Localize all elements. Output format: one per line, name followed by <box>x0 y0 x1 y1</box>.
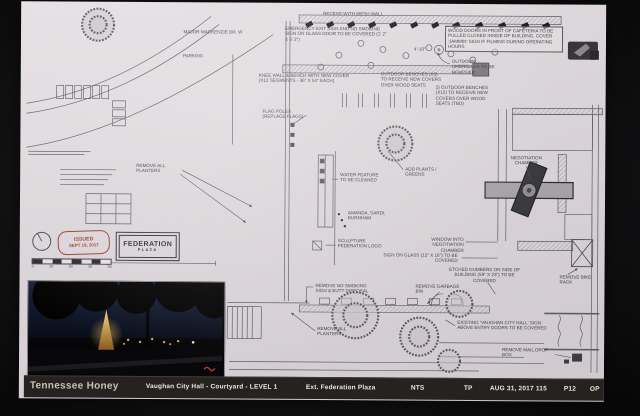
dimension-label: 4'-10" <box>414 47 438 53</box>
scale-tick-0: 0 <box>32 265 34 269</box>
studio-name: Tennessee Honey <box>30 381 119 392</box>
mail-drop-box-symbol <box>572 354 582 362</box>
keyplan-thumbnail <box>566 39 604 65</box>
annotation-names: AMANDA, SARDI, BURNHAM <box>348 210 388 221</box>
annotation-parking: PARKING <box>183 53 219 59</box>
annotation-street-name: MAJOR MACKENZIE DR. W <box>181 29 245 35</box>
drawing-sheet: RECESS WITH MESH WALL EMERGENCY EXIT SIG… <box>19 1 606 402</box>
federation-plaza-inner: FEDERATION PLAZA <box>119 235 177 258</box>
annotation-remove-planters-left: REMOVE ALL PLANTERS <box>136 163 182 174</box>
annotation-benches-x12: 2) OUTDOOR BENCHES (X12) TO RECEIVE NEW … <box>436 85 498 107</box>
scale-bar-ticks: 0 10 20 30 40 <box>32 265 112 269</box>
annotation-remove-mail: REMOVE MAIL DROP BOX <box>502 347 554 358</box>
annotation-etched-numbers: ETCHED NUMBERS ON SIDE OF BUILDING (59" … <box>448 267 522 284</box>
night-photo-art <box>28 281 223 375</box>
north-arrow <box>33 232 51 250</box>
issued-stamp-line2: SEPT 19, 2017 <box>59 243 109 249</box>
small-fixture-symbol <box>564 360 569 364</box>
federation-plaza-box: FEDERATION PLAZA <box>116 232 180 261</box>
date-value: AUG 31, 2017 <box>490 386 534 393</box>
page-number: P12 <box>564 387 576 394</box>
code-value: OP <box>590 387 600 394</box>
annotation-sculpture-logo: SCULPTURE FEDERATION LOGO <box>338 238 382 249</box>
graphic-scale-bar: 0 10 20 30 40 <box>32 258 112 269</box>
title-bar: Tennessee Honey Vaughan City Hall - Cour… <box>24 375 604 401</box>
scale-tick-40: 40 <box>108 265 112 269</box>
annotation-benches-x5: OUTDOOR BENCHES (X5) TO RECEIVE NEW COVE… <box>381 71 443 88</box>
annotation-umbrellas: OUTDOOR UMBRELLAS TO BE REMOVED <box>452 59 498 75</box>
scale-tick-20: 20 <box>69 265 73 269</box>
annotation-wood-doors: WOOD DOORS IN FRONT OF CAFETERIA TO BE P… <box>445 26 563 52</box>
federation-plaza-line2: PLAZA <box>138 249 158 253</box>
night-photo-inset <box>27 280 226 378</box>
scale-tick-30: 30 <box>88 265 92 269</box>
annotation-flag-poles: FLAG POLES (REPLACE FLAGS) <box>262 109 308 120</box>
annotation-remove-bike-rack: REMOVE BIKE RACK <box>559 275 601 286</box>
name-marker-dots <box>338 213 346 227</box>
project-title: Vaughan City Hall - Courtyard - LEVEL 1 <box>146 384 278 391</box>
keyplan-glyph <box>566 39 604 65</box>
annotation-remove-garbage: REMOVE GARBAGE BIN <box>415 284 461 295</box>
projected-slide-photo: RECESS WITH MESH WALL EMERGENCY EXIT SIG… <box>0 0 640 416</box>
scale-bar-cells <box>32 258 112 264</box>
flag-pole-symbols <box>290 123 294 147</box>
federation-plaza-line1: FEDERATION <box>123 240 172 247</box>
annotation-window-chamber: WINDOW INTO NEGOTIATION CHAMBER <box>416 237 464 254</box>
annotation-remove-planters-bottom: REMOVE ALL PLANTERS <box>317 326 365 337</box>
annotation-negotiation-chamber: NEGOTIATION CHAMBER <box>500 155 552 166</box>
annotation-existing-sign: EXISTING 'VAUGHAN CITY HALL' SIGN ABOVE … <box>457 320 551 331</box>
job-number: 115 <box>536 386 547 393</box>
annotation-no-smoking: REMOVE NO SMOKING SIGN & BUTT DISPOSAL <box>315 283 373 294</box>
annotation-emergency-exit: EMERGENCY EXIT SIGN AND NO SMOKING SIGN … <box>285 26 387 43</box>
scale-value: NTS <box>411 386 425 393</box>
parking-stalls <box>56 85 125 125</box>
annotation-knee-wall: KNEE WALL & BENCH WITH NEW COVER (X12 SE… <box>259 73 354 84</box>
annotation-water-feature: WATER FEATURE TO BE CLEANED <box>340 172 384 183</box>
initials-value: TP <box>464 386 473 393</box>
annotation-add-plants: ADD PLANTS / GREENS <box>405 167 457 178</box>
annotation-glass-sign: SIGN ON GLASS (12" X 16") TO BE COVERED <box>382 252 458 263</box>
annotation-recess-mesh-wall: RECESS WITH MESH WALL <box>293 11 413 17</box>
sheet-title: Ext. Federation Plaza <box>306 385 376 392</box>
scale-tick-10: 10 <box>49 265 53 269</box>
issued-stamp: ISSUED SEPT 19, 2017 <box>57 230 110 255</box>
bike-rack-symbol <box>572 240 593 267</box>
